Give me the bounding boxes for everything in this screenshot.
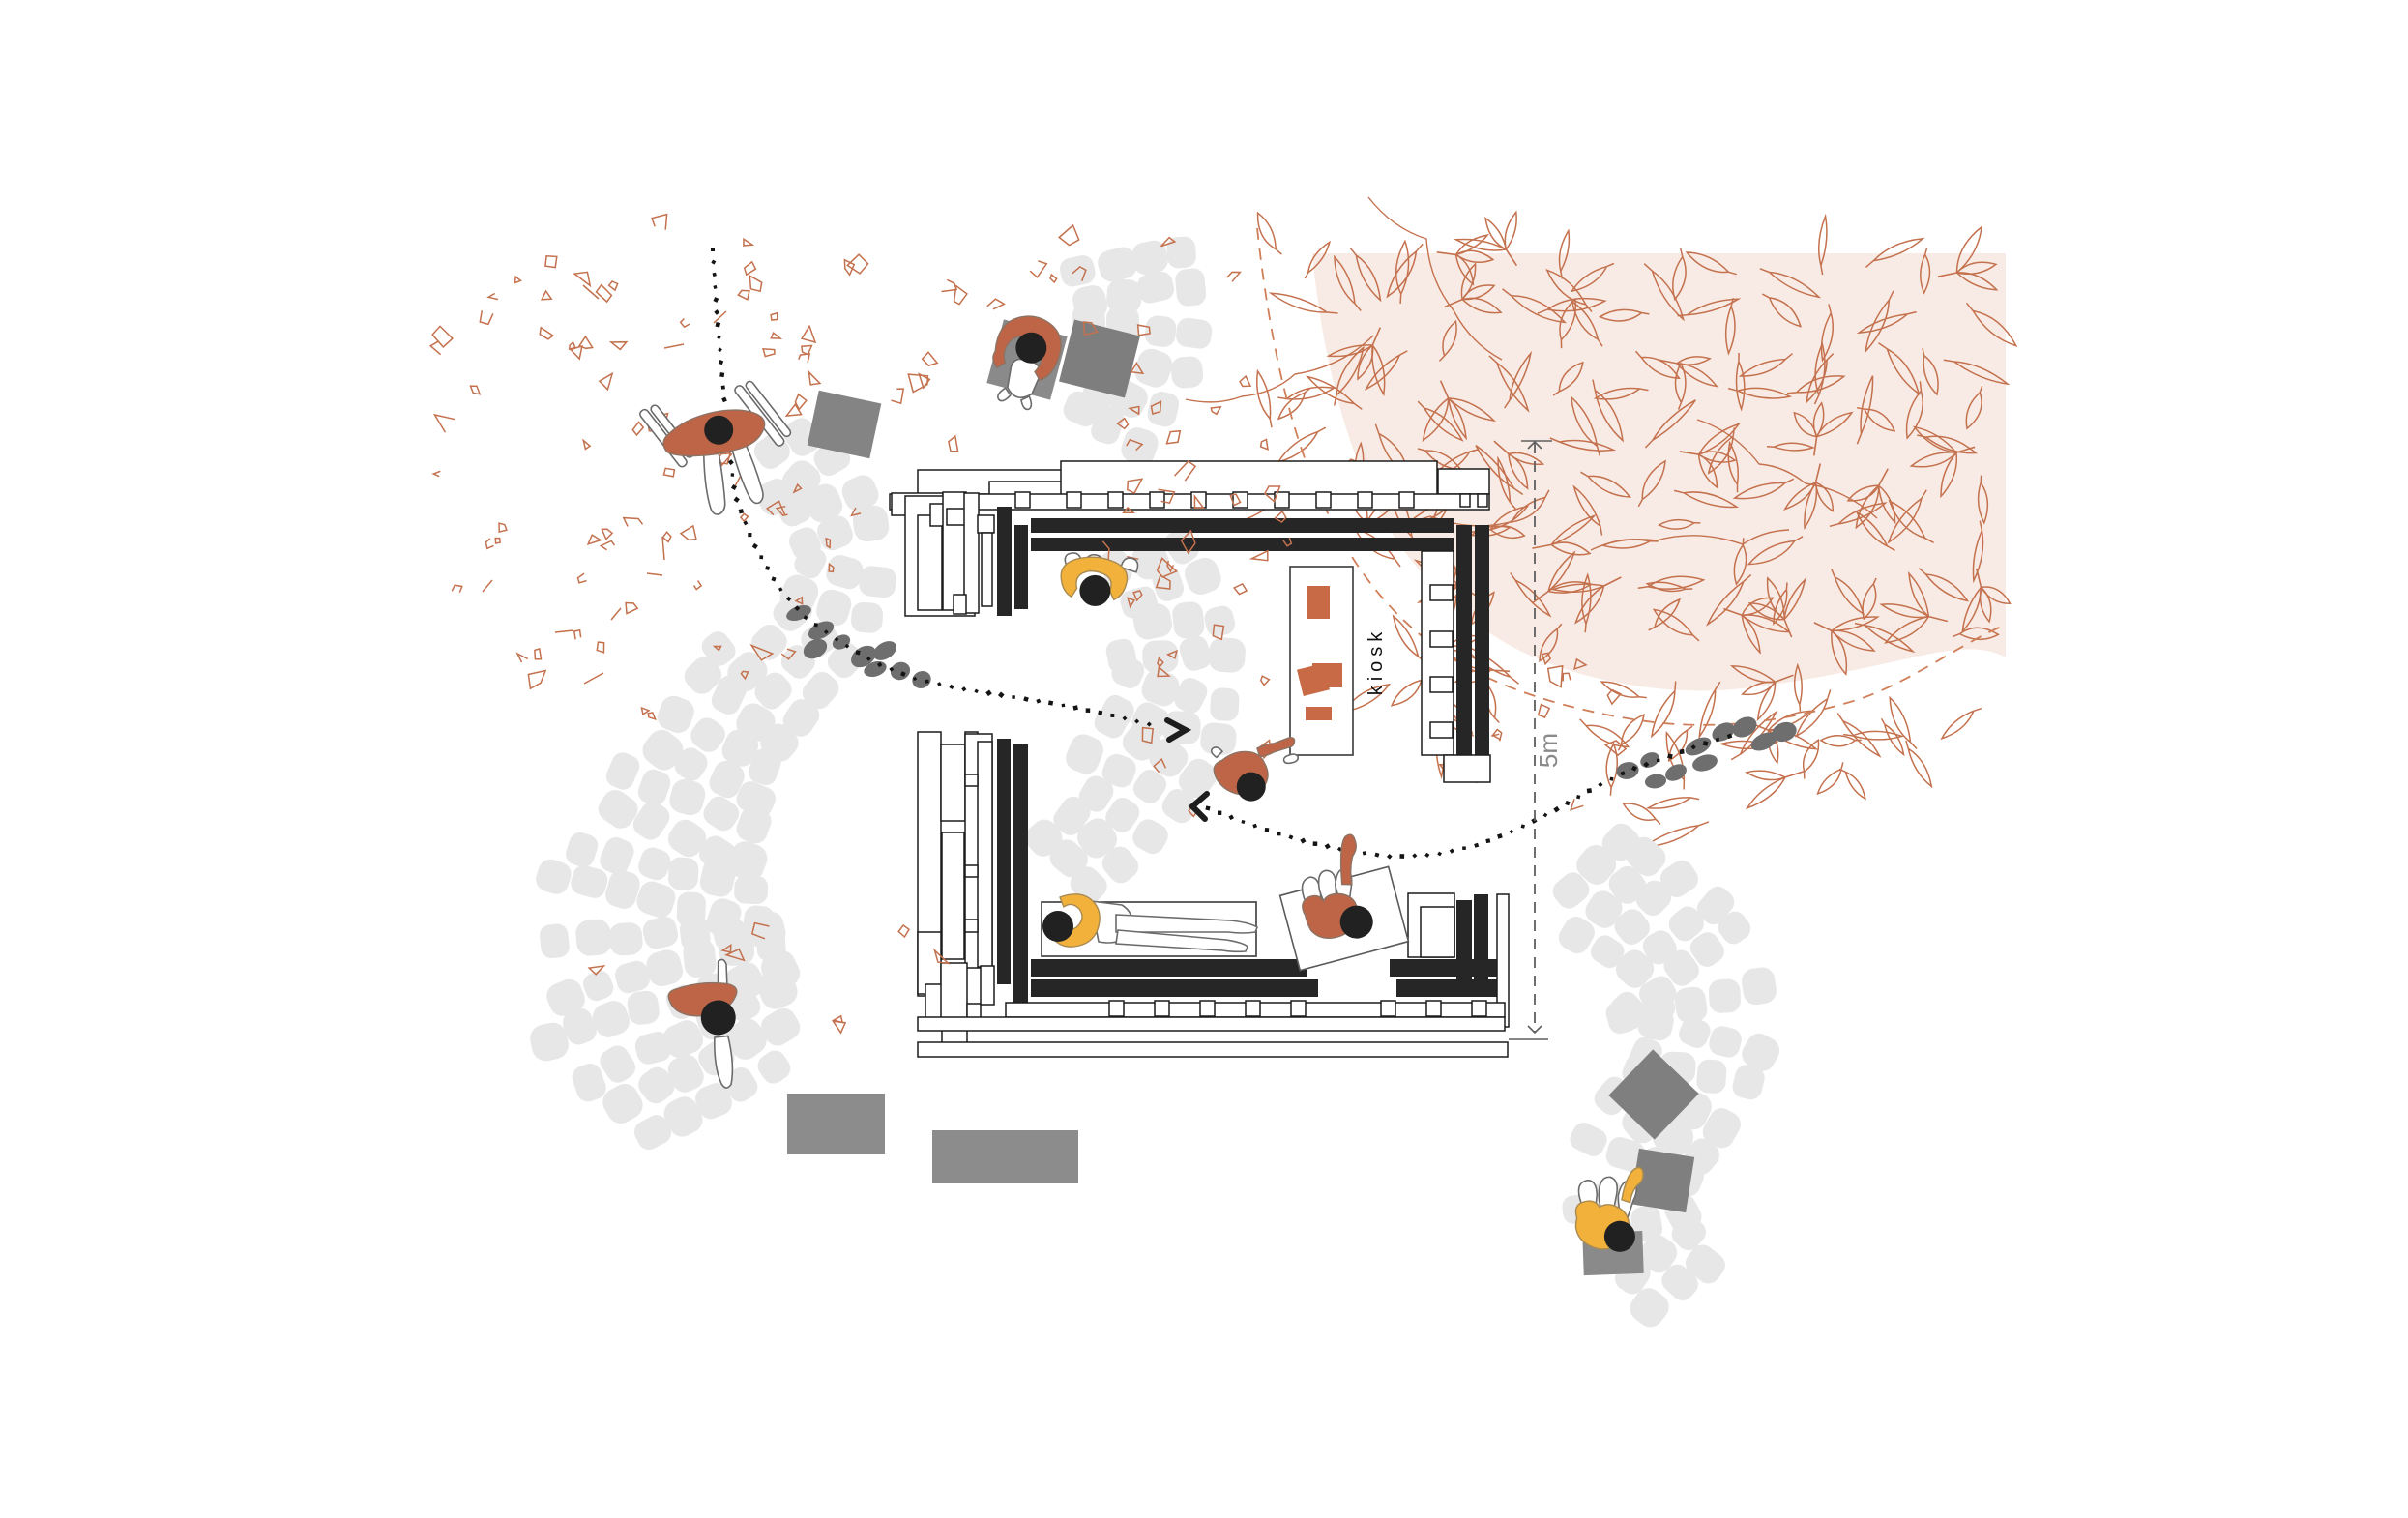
svg-text:kiosk: kiosk [1366, 628, 1387, 696]
svg-text:5m: 5m [1534, 733, 1563, 768]
